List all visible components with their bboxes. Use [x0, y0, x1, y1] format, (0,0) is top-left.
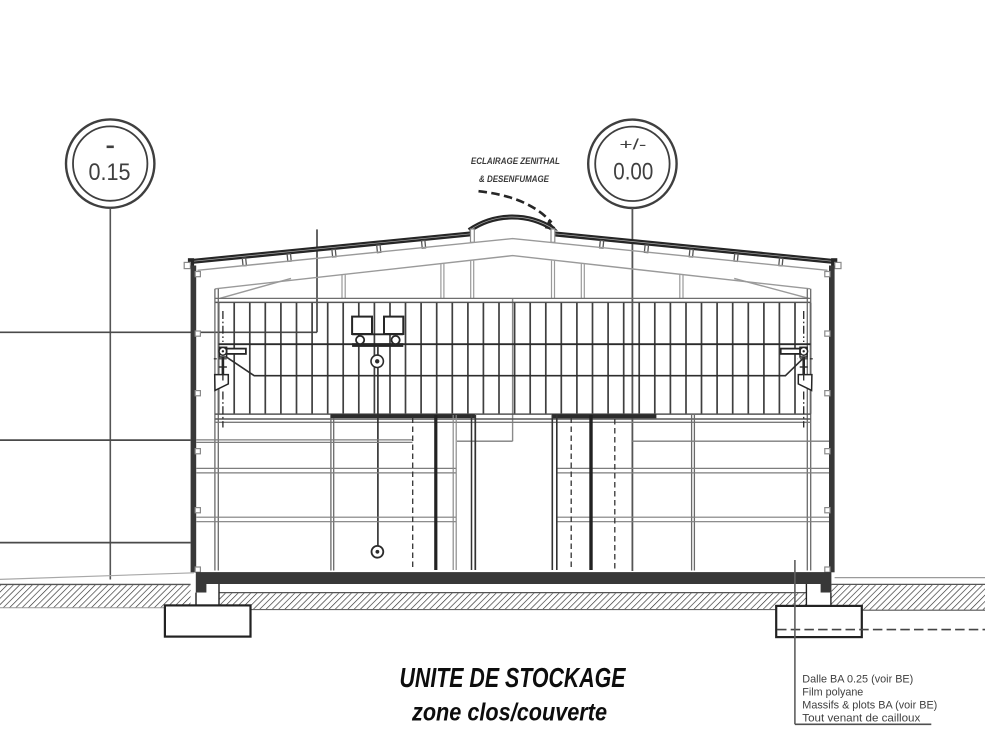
svg-text:Tout venant de cailloux: Tout venant de cailloux	[802, 713, 921, 725]
svg-text:0.00: 0.00	[613, 159, 653, 186]
svg-text:& DESENFUMAGE: & DESENFUMAGE	[479, 174, 550, 184]
svg-text:ECLAIRAGE ZENITHAL: ECLAIRAGE ZENITHAL	[471, 156, 560, 166]
svg-text:+/-: +/-	[619, 136, 646, 153]
svg-text:UNITE DE STOCKAGE: UNITE DE STOCKAGE	[400, 662, 627, 693]
svg-text:Dalle BA 0.25 (voir BE): Dalle BA 0.25 (voir BE)	[802, 673, 913, 685]
svg-text:Massifs & plots BA (voir BE): Massifs & plots BA (voir BE)	[802, 700, 937, 712]
svg-text:Film polyane: Film polyane	[802, 686, 863, 698]
svg-text:0.15: 0.15	[89, 159, 131, 186]
svg-text:zone clos/couverte: zone clos/couverte	[411, 699, 607, 727]
